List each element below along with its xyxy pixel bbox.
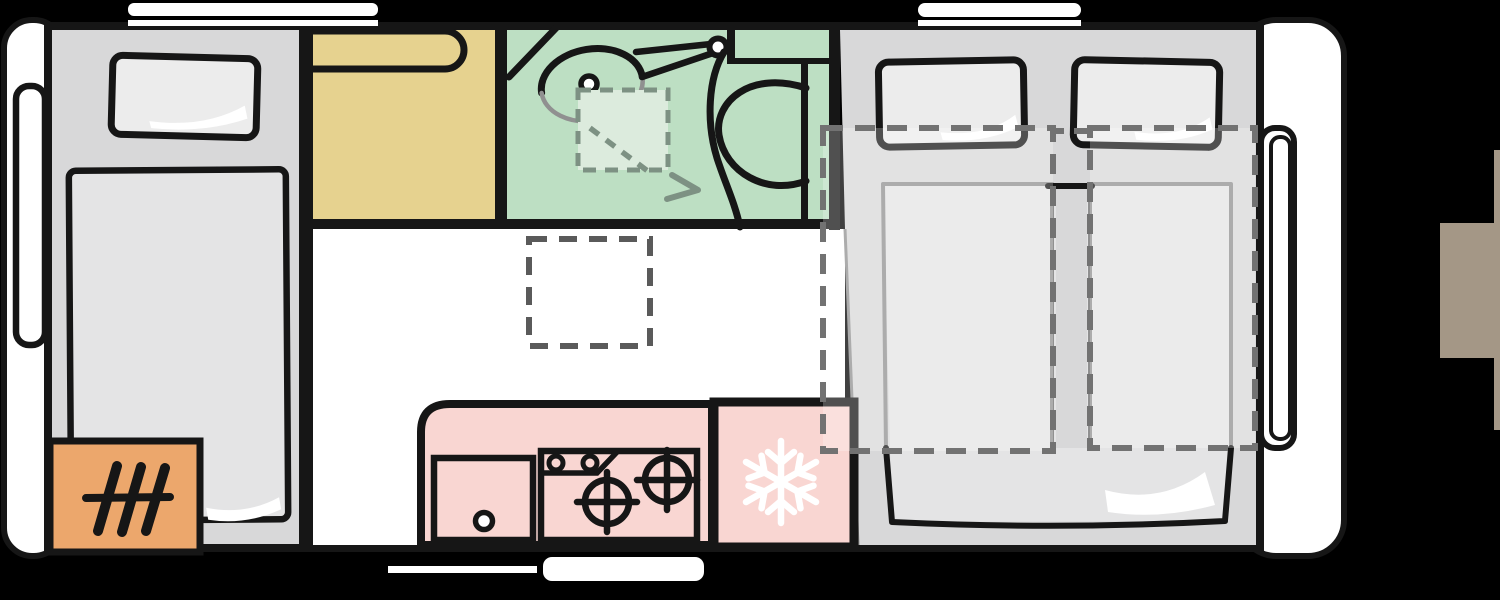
roof-window-rear [918,3,1081,17]
front-window [16,86,45,345]
roof-window-rear-sill [918,20,1081,26]
heater [50,441,200,552]
hob-knob-2 [583,456,597,470]
wall-wardrobe-bathroom [495,26,507,228]
wall-bathroom-living [313,219,840,229]
side-panel-tab[interactable] [1440,223,1498,358]
sink-drain [476,513,493,530]
caravan-floorplan [0,0,1500,600]
wall-front-bedroom [299,26,313,548]
screenshot-canvas [0,0,1500,600]
front-pillow [111,55,258,138]
roof-window-front-sill [128,20,378,26]
rear-bedroom [823,60,1255,526]
hob-knob-1 [549,456,563,470]
kitchen [421,402,854,547]
underbody-rail [388,566,537,573]
roof-window-front [128,3,378,16]
bed-extension-outline [823,128,1255,451]
bed-extension-right [1090,128,1255,448]
rear-side-window-inner [1271,137,1290,439]
entry-step [543,557,704,581]
wardrobe-area [313,30,503,226]
bed-extension-left [823,128,1053,451]
rear-bed-gap [1056,188,1087,448]
